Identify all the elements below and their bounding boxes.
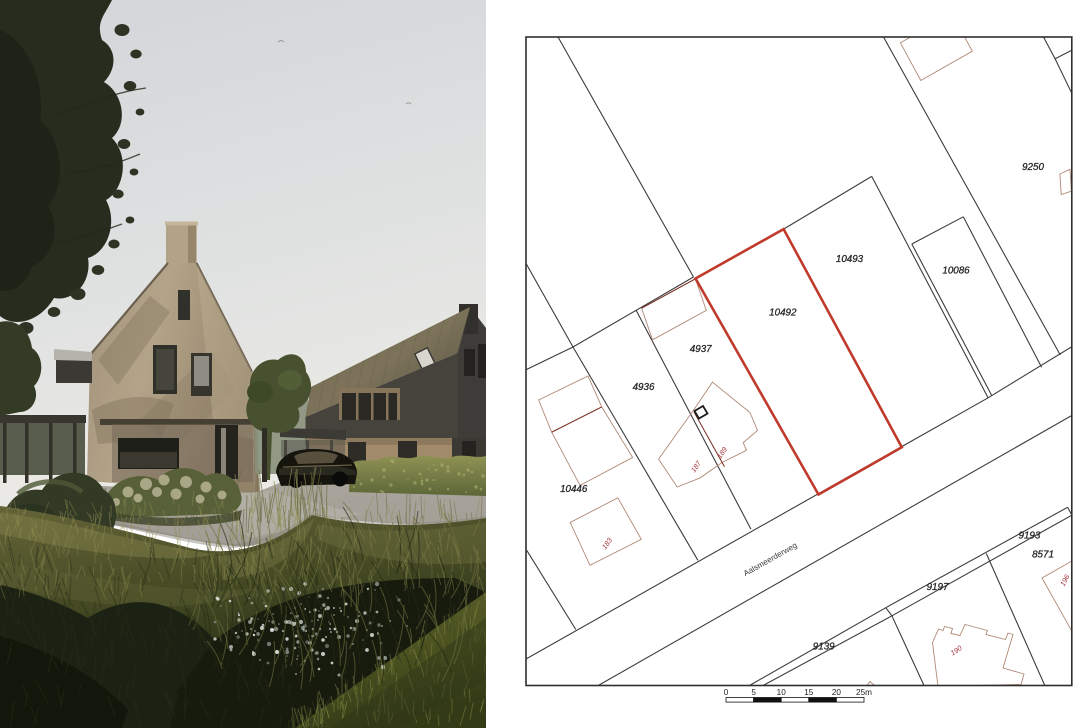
svg-text:8571: 8571 [1032, 550, 1054, 561]
svg-text:10086: 10086 [942, 265, 970, 276]
svg-text:15: 15 [804, 688, 814, 697]
svg-text:20: 20 [832, 688, 842, 697]
svg-text:10492: 10492 [769, 307, 797, 318]
svg-text:9139: 9139 [813, 642, 835, 653]
svg-text:9197: 9197 [927, 582, 949, 593]
svg-text:10493: 10493 [836, 254, 864, 265]
svg-text:0: 0 [724, 688, 729, 697]
svg-text:10446: 10446 [560, 484, 588, 495]
svg-text:9193: 9193 [1019, 531, 1041, 542]
svg-text:9250: 9250 [1022, 162, 1044, 173]
svg-text:25m: 25m [856, 688, 872, 697]
svg-text:5: 5 [751, 688, 756, 697]
svg-text:4937: 4937 [690, 344, 712, 355]
svg-text:10: 10 [777, 688, 787, 697]
svg-text:4936: 4936 [633, 382, 655, 393]
